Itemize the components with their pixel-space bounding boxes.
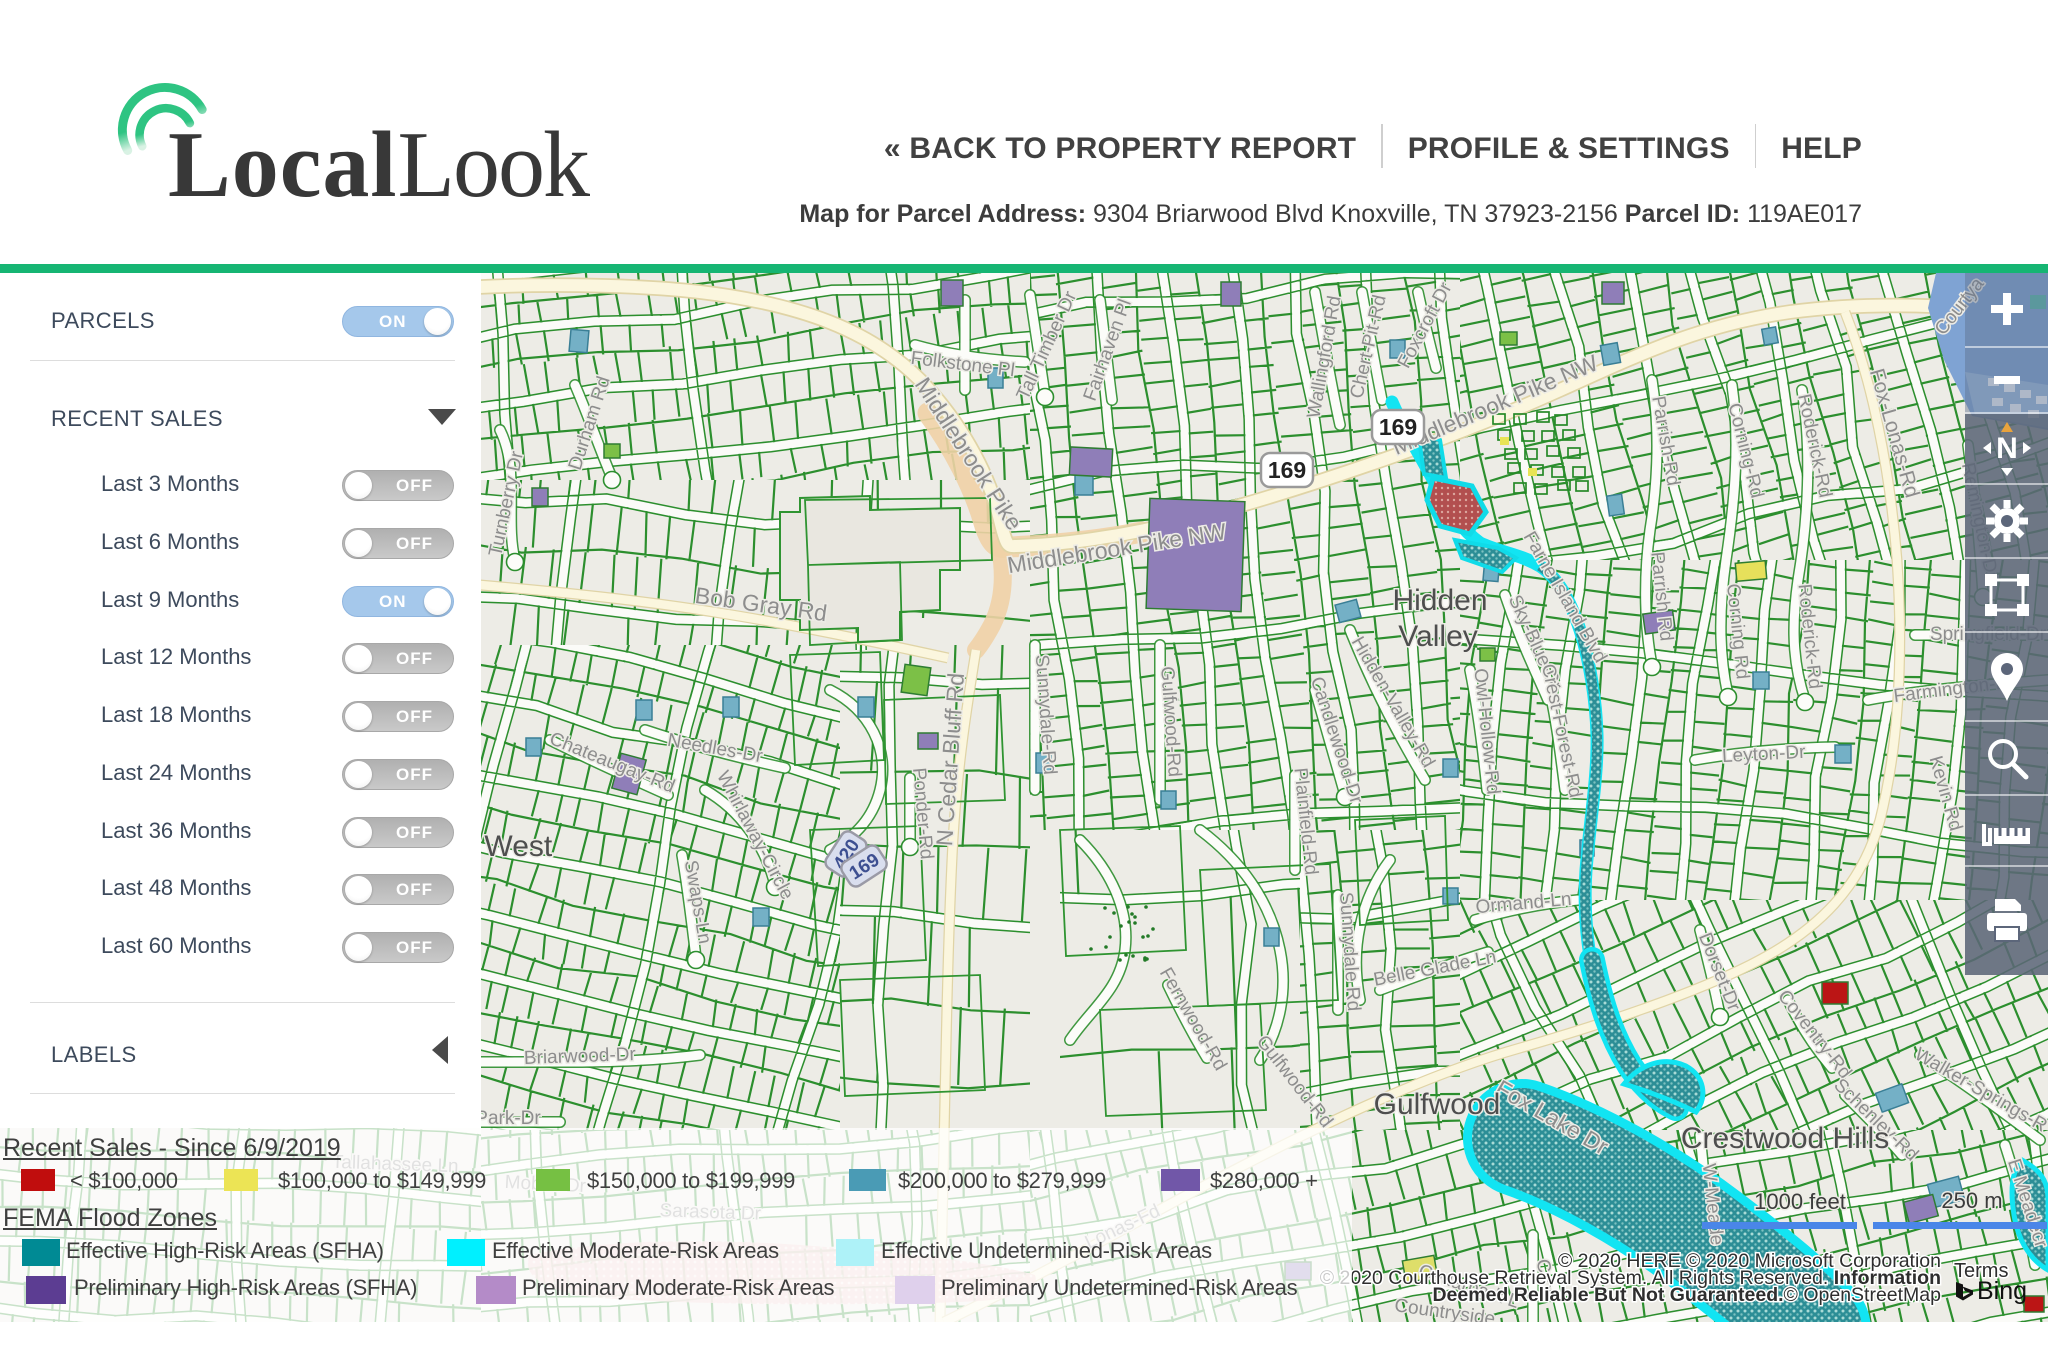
- svg-text:Deemed Reliable But Not Guaran: Deemed Reliable But Not Guaranteed.© Ope…: [1432, 1284, 1941, 1306]
- svg-text:Leyton-Dr: Leyton-Dr: [1722, 742, 1807, 767]
- svg-text:169: 169: [1379, 414, 1417, 440]
- svg-text:N: N: [1996, 432, 2018, 465]
- svg-text:Gulfwood: Gulfwood: [1374, 1088, 1501, 1121]
- svg-text:Bing: Bing: [1977, 1277, 2027, 1305]
- svg-text:Crestwood Hills: Crestwood Hills: [1681, 1122, 1889, 1155]
- svg-text:1000 feet: 1000 feet: [1754, 1189, 1846, 1214]
- svg-text:Valley: Valley: [1398, 620, 1477, 653]
- svg-text:250 m: 250 m: [1941, 1188, 2002, 1213]
- svg-text:Briarwood-Dr: Briarwood-Dr: [524, 1044, 637, 1069]
- svg-text:Park-Dr: Park-Dr: [475, 1108, 541, 1129]
- svg-text:Hidden: Hidden: [1392, 584, 1487, 617]
- svg-text:169: 169: [1268, 457, 1306, 483]
